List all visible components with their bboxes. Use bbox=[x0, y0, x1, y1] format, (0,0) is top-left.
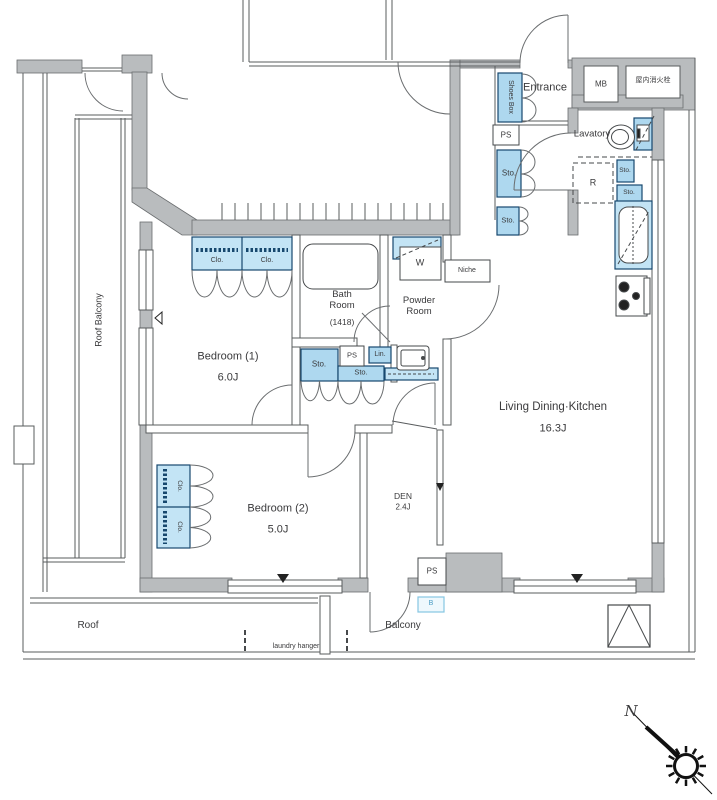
ldk-label: Living Dining·Kitchen bbox=[499, 401, 607, 415]
hall-door bbox=[393, 383, 435, 425]
lavatory-door bbox=[514, 133, 571, 190]
bathtub bbox=[303, 244, 378, 289]
fire-hydrant-label: 屋内消火栓 bbox=[636, 77, 671, 85]
bedroom1-label: Bedroom (1) bbox=[197, 351, 258, 364]
lavatory-label: Lavatory bbox=[574, 128, 610, 139]
roof-balcony-label: Roof Balcony bbox=[94, 293, 105, 347]
sto-label: Sto. bbox=[312, 359, 326, 368]
roof-label: Roof bbox=[77, 620, 98, 632]
meter-box-label: MB bbox=[595, 79, 607, 88]
floor-plan-drawing bbox=[0, 0, 717, 800]
fridge-label: R bbox=[590, 178, 597, 189]
shoes-box-label: Shoes Box bbox=[506, 80, 514, 114]
sto-label: Sto. bbox=[619, 167, 631, 175]
ldk-size: 16.3J bbox=[540, 423, 567, 436]
bedroom2-door bbox=[308, 430, 355, 477]
evacuation-hatch bbox=[608, 605, 650, 647]
bedroom1-size: 6.0J bbox=[218, 372, 239, 385]
ps-label: PS bbox=[501, 130, 512, 139]
ps-label: PS bbox=[347, 352, 357, 361]
interior-walls bbox=[14, 235, 451, 578]
powder-room-door bbox=[445, 285, 499, 339]
clo-label: Clo. bbox=[211, 257, 223, 265]
lin-label: Lin. bbox=[374, 351, 385, 359]
bath-size-label: (1418) bbox=[330, 317, 355, 327]
party-wall-ticks bbox=[222, 203, 443, 220]
den-label: DEN bbox=[394, 491, 412, 501]
laundry-hanger-label: laundry hanger bbox=[273, 643, 320, 651]
balcony-label: Balcony bbox=[385, 620, 421, 632]
clo-label: Clo. bbox=[175, 480, 183, 492]
clo-label: Clo. bbox=[175, 521, 183, 533]
bath-room-label: Bath Room bbox=[322, 289, 362, 311]
sto-label: Sto. bbox=[502, 168, 516, 177]
sto-label: Sto. bbox=[354, 369, 367, 378]
sto-label: Sto. bbox=[501, 217, 514, 226]
stove bbox=[616, 276, 647, 316]
powder-room-label: Powder Room bbox=[397, 295, 441, 317]
bedroom1-door bbox=[252, 385, 292, 425]
washer-label: W bbox=[416, 258, 425, 269]
compass bbox=[631, 711, 712, 794]
floor-plan: Entrance MB 屋内消火栓 Lavatory Shoes Box PS … bbox=[0, 0, 717, 800]
clo-label: Clo. bbox=[261, 257, 273, 265]
sto-label: Sto. bbox=[623, 189, 635, 197]
compass-north-label: N bbox=[624, 703, 637, 721]
ps-label: PS bbox=[427, 566, 438, 575]
den-size: 2.4J bbox=[395, 502, 410, 511]
bedroom2-size: 5.0J bbox=[268, 524, 289, 537]
roof-balcony-gate bbox=[85, 73, 123, 111]
entrance-label: Entrance bbox=[523, 82, 567, 95]
balcony-items bbox=[418, 597, 650, 647]
window-arrow-left bbox=[155, 312, 162, 324]
compass-sun bbox=[675, 755, 698, 778]
entrance-door bbox=[520, 15, 568, 63]
niche-label: Niche bbox=[458, 267, 476, 275]
b-mark-label: B bbox=[429, 600, 434, 608]
bedroom2-label: Bedroom (2) bbox=[247, 503, 308, 516]
